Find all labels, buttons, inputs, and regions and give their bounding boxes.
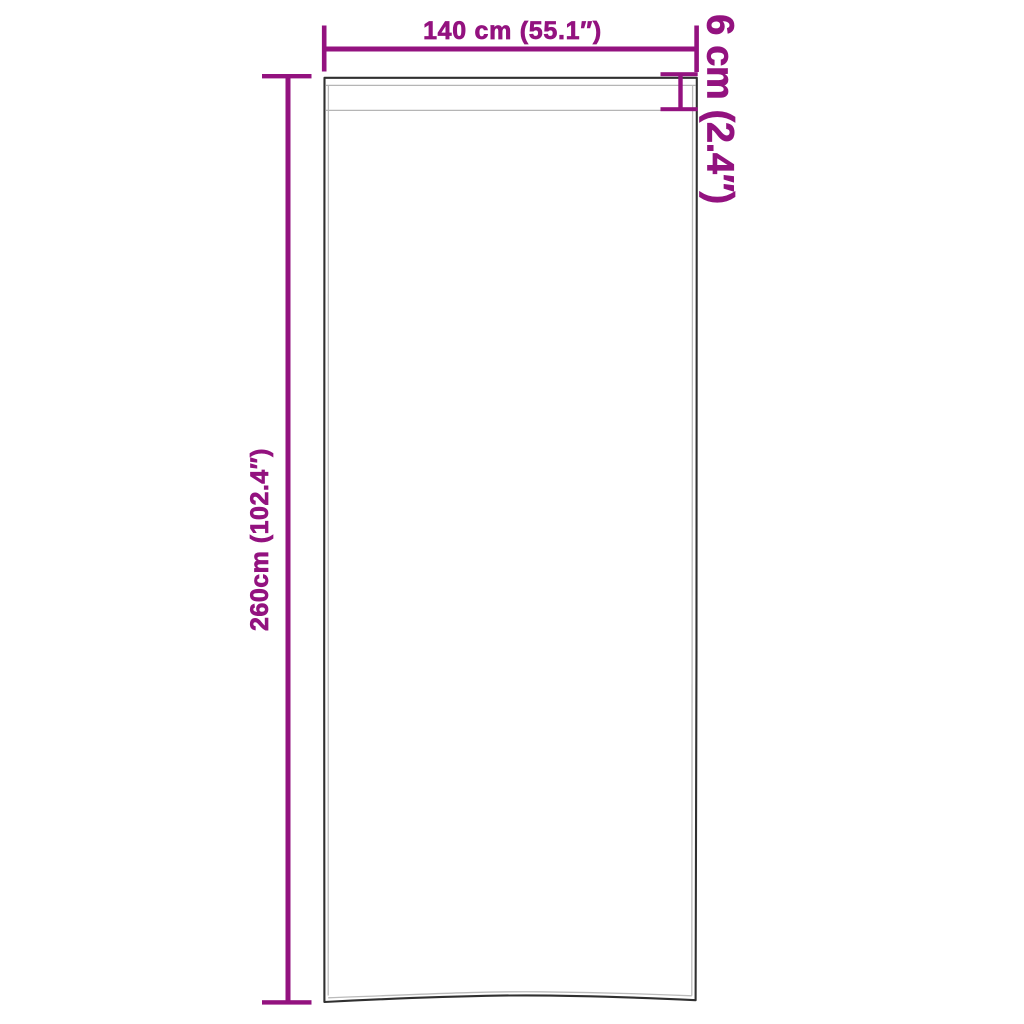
svg-text:140 cm (55.1″): 140 cm (55.1″) (423, 17, 602, 45)
svg-text:260cm (102.4″): 260cm (102.4″) (246, 448, 274, 631)
svg-text:6 cm (2.4″): 6 cm (2.4″) (699, 14, 741, 204)
